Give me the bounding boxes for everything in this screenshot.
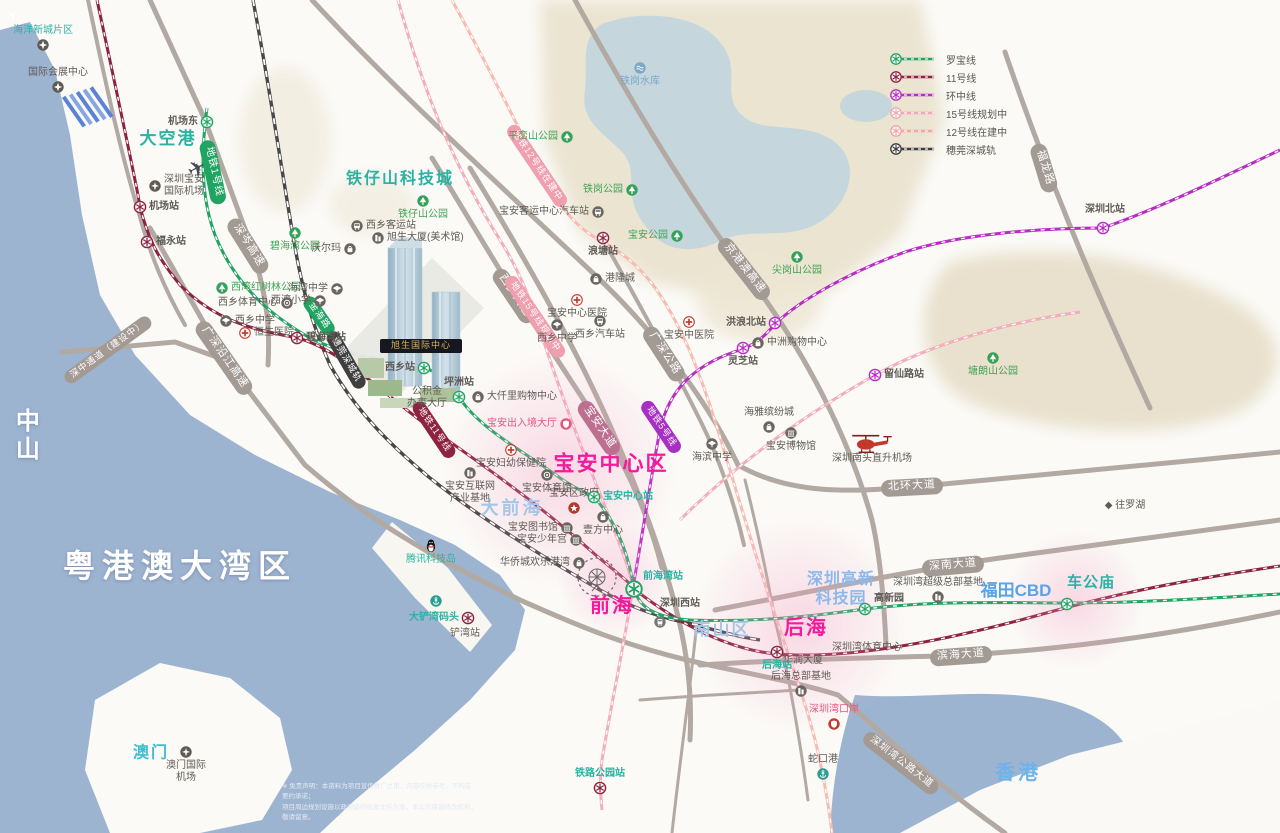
station-label: 后海站 xyxy=(762,660,792,672)
metro-station-icon xyxy=(1097,222,1110,235)
legend-item: 12号线在建中 xyxy=(886,122,1007,140)
shenzhen-metro-area-map: 粤港澳大湾区中山大空港铁仔山科技城大前海宝安中心区前海后海南山区深圳高新科技园福… xyxy=(0,0,1280,833)
metro-station-icon xyxy=(769,317,782,330)
station-label: 坪洲站 xyxy=(444,377,474,389)
station-label: 深圳西站 xyxy=(660,598,700,610)
metro-station-icon xyxy=(418,362,431,375)
metro-station-icon xyxy=(859,603,872,616)
train-station-icon xyxy=(654,616,666,628)
legend-item: 罗宝线 xyxy=(886,50,1007,68)
legend-item: 11号线 xyxy=(886,68,1007,86)
legend-item: 环中线 xyxy=(886,86,1007,104)
metro-station-icon xyxy=(134,201,147,214)
metro-station-icon xyxy=(588,491,601,504)
metro-station-icon xyxy=(453,391,466,404)
map-legend: 罗宝线11号线环中线15号线规划中12号线在建中穗莞深城轨 xyxy=(886,50,1007,158)
station-label: 前海湾站 xyxy=(643,571,683,583)
legend-line-sample xyxy=(886,52,938,66)
legend-line-sample xyxy=(886,88,938,102)
metro-station-icon xyxy=(597,232,610,245)
disclaimer-text: ※ 免责声明：本资料为项目宣传推广之用，内容仅供参考，不构成要约承诺； 项目周边… xyxy=(282,782,477,824)
station-label: 碧海湾站 xyxy=(306,332,346,344)
metro-station-icon xyxy=(291,332,304,345)
legend-item: 15号线规划中 xyxy=(886,104,1007,122)
legend-line-sample xyxy=(886,70,938,84)
station-label: 深圳北站 xyxy=(1085,204,1125,216)
metro-station-icon xyxy=(737,342,750,355)
legend-item: 穗莞深城轨 xyxy=(886,140,1007,158)
station-label: 浪塘站 xyxy=(588,246,618,258)
station-label: 铁路公园站 xyxy=(575,768,625,780)
legend-label: 12号线在建中 xyxy=(946,124,1007,139)
station-label: 福永站 xyxy=(156,236,186,248)
metro-station-icon xyxy=(201,116,214,129)
legend-label: 穗莞深城轨 xyxy=(946,142,996,157)
station-label: 车公庙 xyxy=(1067,574,1115,592)
station-label: 留仙路站 xyxy=(884,369,924,381)
metro-station-icon xyxy=(1061,598,1074,611)
station-label: 机场东 xyxy=(168,116,198,128)
disclaimer-line1: ※ 免责声明：本资料为项目宣传推广之用，内容仅供参考，不构成要约承诺； xyxy=(282,783,471,800)
station-label: 大铲湾码头 xyxy=(409,612,459,624)
station-label: 灵芝站 xyxy=(728,356,758,368)
stations-layer: 机场东机场站福永站碧海湾站西乡站坪洲站宝安中心站前海湾站高新园车公庙浪塘站灵芝站… xyxy=(0,0,1280,833)
metro-station-icon xyxy=(771,646,784,659)
disclaimer-line2: 项目周边规划设施以政府最终批复文件为准，本公司保留修改权利，敬请留意。 xyxy=(282,804,477,821)
metro-station-icon xyxy=(625,580,643,598)
legend-label: 环中线 xyxy=(946,88,976,103)
station-label: 宝安中心站 xyxy=(603,491,653,503)
metro-station-icon xyxy=(141,236,154,249)
metro-station-icon xyxy=(869,369,882,382)
legend-line-sample xyxy=(886,124,938,138)
legend-line-sample xyxy=(886,142,938,156)
station-label: 高新园 xyxy=(874,593,904,605)
legend-label: 罗宝线 xyxy=(946,52,976,67)
metro-station-icon xyxy=(462,612,475,625)
metro-station-icon xyxy=(594,782,607,795)
station-label: 机场站 xyxy=(149,201,179,213)
project-name-plate: 旭生国际中心 xyxy=(380,339,462,353)
station-label: 西乡站 xyxy=(385,362,415,374)
legend-line-sample xyxy=(886,106,938,120)
legend-label: 11号线 xyxy=(946,70,976,85)
legend-label: 15号线规划中 xyxy=(946,106,1007,121)
station-label: 洪浪北站 xyxy=(726,317,766,329)
